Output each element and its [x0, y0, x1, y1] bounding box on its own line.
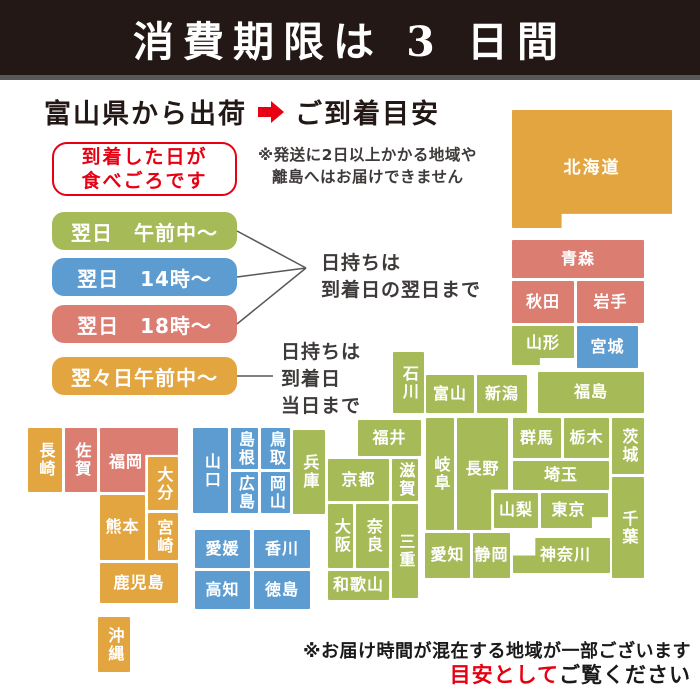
prefecture-label: 秋田 — [526, 294, 560, 311]
prefecture-label: 東京 — [551, 502, 585, 519]
prefecture-label: 鳥取 — [267, 431, 284, 467]
prefecture-label: 山口 — [202, 453, 219, 489]
prefecture-ibaraki: 茨城 — [612, 418, 644, 474]
prefecture-label: 山形 — [526, 335, 560, 352]
prefecture-wakayama: 和歌山 — [328, 571, 389, 600]
prefecture-kochi: 高知 — [195, 571, 250, 609]
prefecture-label: 三重 — [397, 533, 414, 569]
prefecture-tokyo: 東京 — [541, 493, 608, 528]
prefecture-mie: 三重 — [392, 504, 418, 598]
prefecture-akita: 秋田 — [512, 281, 574, 323]
prefecture-label: 富山 — [433, 386, 467, 403]
prefecture-hyogo: 兵庫 — [293, 430, 325, 514]
prefecture-gunma: 群馬 — [513, 418, 561, 458]
prefecture-label: 愛知 — [430, 547, 464, 564]
prefecture-label: 京都 — [341, 472, 375, 489]
prefecture-label: 福井 — [372, 430, 406, 447]
prefecture-ehime: 愛媛 — [195, 530, 250, 568]
prefecture-chiba: 千葉 — [612, 477, 644, 578]
footer-emphasis-red: 目安として — [450, 663, 559, 687]
prefecture-label: 長野 — [465, 461, 499, 478]
prefecture-label: 奈良 — [364, 518, 381, 554]
prefecture-gifu: 岐阜 — [426, 418, 454, 530]
prefecture-miyagi: 宮城 — [577, 326, 638, 368]
prefecture-shiga: 滋賀 — [392, 459, 418, 501]
prefecture-label: 茨城 — [620, 428, 637, 464]
prefecture-label: 広島 — [236, 475, 253, 511]
prefecture-tottori: 鳥取 — [261, 428, 290, 469]
prefecture-hiroshima: 広島 — [231, 472, 258, 513]
prefecture-label: 鹿児島 — [113, 575, 164, 592]
prefecture-tokushima: 徳島 — [254, 571, 310, 609]
prefecture-saga: 佐賀 — [65, 428, 97, 492]
japan-delivery-map: 北海道青森秋田岩手山形宮城石川富山新潟福島福井岐阜長野群馬栃木茨城埼玉山梨東京千… — [0, 0, 700, 700]
prefecture-label: 長崎 — [37, 442, 54, 478]
prefecture-label: 滋賀 — [397, 462, 414, 498]
prefecture-fukushima: 福島 — [538, 372, 644, 413]
prefecture-fukui: 福井 — [358, 420, 421, 456]
prefecture-miyazaki: 宮崎 — [148, 513, 178, 560]
prefecture-yamaguchi: 山口 — [193, 428, 228, 513]
prefecture-kagawa: 香川 — [254, 530, 310, 568]
prefecture-label: 新潟 — [485, 386, 519, 403]
prefecture-aichi: 愛知 — [425, 533, 470, 578]
prefecture-label: 宮城 — [590, 339, 624, 356]
prefecture-label: 青森 — [561, 251, 595, 268]
prefecture-toyama: 富山 — [426, 375, 474, 413]
prefecture-label: 島根 — [236, 431, 253, 467]
prefecture-okinawa: 沖縄 — [98, 617, 130, 672]
prefecture-label: 沖縄 — [106, 627, 123, 663]
prefecture-tochigi: 栃木 — [564, 418, 609, 458]
prefecture-shimane: 島根 — [231, 428, 258, 469]
prefecture-label: 兵庫 — [301, 454, 318, 490]
prefecture-hokkaido: 北海道 — [512, 110, 672, 228]
prefecture-kanagawa: 神奈川 — [513, 538, 610, 573]
prefecture-label: 高知 — [205, 582, 239, 599]
footer-emphasis: 目安としてご覧ください — [450, 659, 691, 689]
prefecture-label: 和歌山 — [333, 577, 384, 594]
prefecture-kagoshima: 鹿児島 — [100, 563, 178, 603]
prefecture-label: 徳島 — [265, 582, 299, 599]
prefecture-shizuoka: 静岡 — [473, 533, 510, 578]
prefecture-iwate: 岩手 — [577, 281, 644, 323]
prefecture-label: 岐阜 — [432, 456, 449, 492]
prefecture-label: 千葉 — [620, 510, 637, 546]
prefecture-ishikawa: 石川 — [393, 352, 424, 413]
prefecture-label: 北海道 — [564, 160, 621, 178]
prefecture-label: 宮崎 — [155, 519, 172, 555]
prefecture-yamagata: 山形 — [512, 326, 574, 365]
prefecture-label: 香川 — [265, 541, 299, 558]
prefecture-okayama: 岡山 — [261, 472, 290, 513]
prefecture-kyoto: 京都 — [328, 459, 389, 501]
prefecture-label: 静岡 — [474, 547, 508, 564]
prefecture-label: 石川 — [400, 365, 417, 401]
prefecture-label: 山梨 — [499, 502, 533, 519]
prefecture-label: 大阪 — [332, 518, 349, 554]
prefecture-aomori: 青森 — [512, 240, 644, 278]
prefecture-label: 群馬 — [520, 430, 554, 447]
prefecture-label: 佐賀 — [73, 442, 90, 478]
prefecture-label: 栃木 — [569, 430, 603, 447]
prefecture-label: 愛媛 — [205, 541, 239, 558]
prefecture-yamanashi: 山梨 — [494, 493, 538, 528]
prefecture-niigata: 新潟 — [477, 375, 527, 413]
prefecture-label: 岩手 — [593, 294, 627, 311]
prefecture-nagasaki: 長崎 — [28, 428, 62, 492]
footer-emphasis-black: ご覧ください — [559, 663, 691, 687]
prefecture-oita: 大分 — [148, 457, 178, 510]
prefecture-label: 埼玉 — [544, 467, 578, 484]
prefecture-label: 熊本 — [105, 519, 139, 536]
prefecture-osaka: 大阪 — [328, 504, 353, 568]
prefecture-label: 神奈川 — [540, 547, 591, 564]
prefecture-nara: 奈良 — [356, 504, 389, 568]
prefecture-label: 大分 — [155, 466, 172, 502]
prefecture-label: 岡山 — [267, 475, 284, 511]
prefecture-label: 福岡 — [109, 454, 143, 471]
prefecture-kumamoto: 熊本 — [100, 495, 145, 560]
prefecture-label: 福島 — [574, 384, 608, 401]
prefecture-saitama: 埼玉 — [513, 461, 609, 490]
